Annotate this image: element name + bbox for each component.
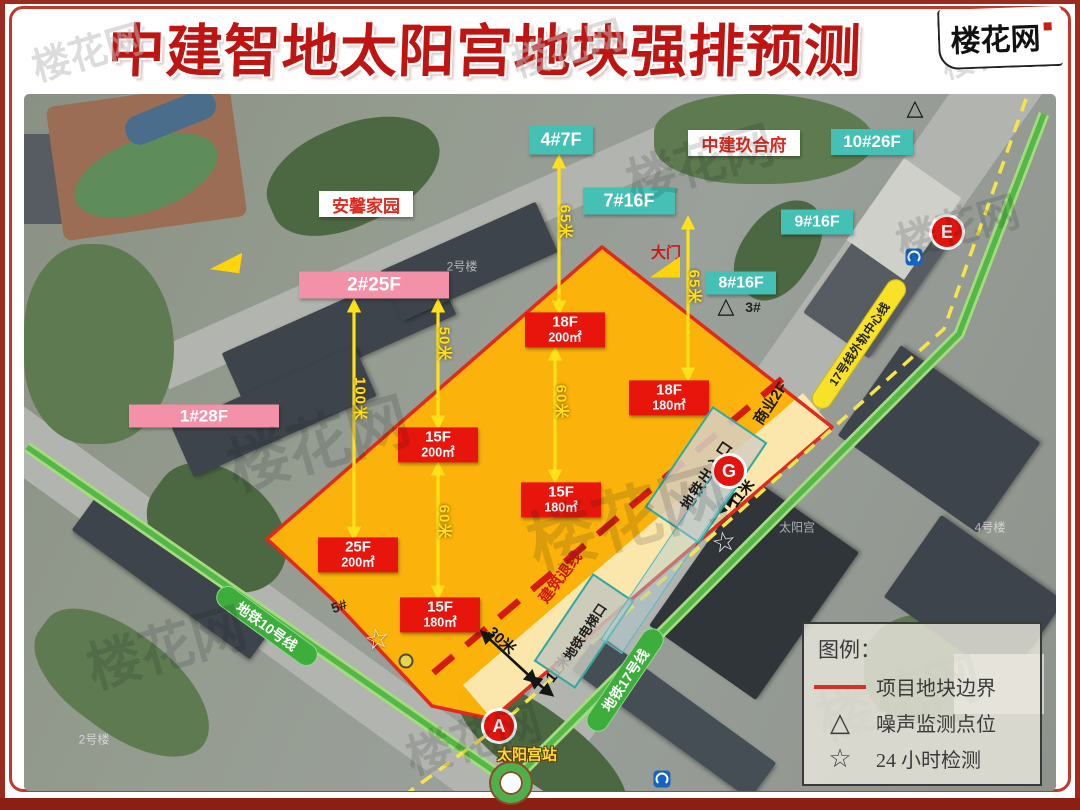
metro-line-pill: 17号线外轨中心线 — [808, 275, 910, 413]
unit-floors: 15F — [521, 484, 601, 501]
page-title: 中建智地太阳宫地块强排预测 — [39, 8, 932, 86]
zone-label: 4#7F — [529, 126, 593, 155]
yellow-dot-icon — [399, 654, 414, 669]
unit-label: 15F180㎡ — [400, 597, 480, 632]
station-name: 太阳宫站 — [497, 744, 557, 765]
satellite-map: 安馨家园中建玖合府4#7F7#16F10#26F9#16F8#16F2#25F1… — [24, 94, 1056, 791]
metro-logo-icon — [654, 771, 671, 788]
map-place-label: 2号楼 — [79, 731, 110, 748]
frame-edge-left — [0, 0, 5, 810]
unit-floors: 18F — [629, 382, 709, 399]
zone-label: 2#25F — [299, 272, 449, 299]
logo: 楼花网 — [937, 6, 1063, 70]
unit-label: 15F180㎡ — [521, 482, 601, 517]
legend-title: 图例： — [818, 634, 1030, 664]
unit-area: 180㎡ — [400, 616, 480, 630]
zone-label: 9#16F — [781, 210, 853, 235]
frame-bottom-bar — [0, 798, 1080, 810]
distance-label: 65米 — [556, 205, 577, 240]
marker-g: G — [714, 456, 744, 486]
measure-label: 30米 — [483, 622, 520, 659]
metro-line-pill: 地铁10号线 — [212, 581, 323, 670]
map-text: 商业2F — [748, 377, 792, 428]
map-place-label: 4号楼 — [975, 519, 1006, 536]
unit-label: 25F200㎡ — [318, 537, 398, 572]
zone-label: 8#16F — [706, 272, 776, 295]
legend-label: 24 小时检测 — [876, 744, 981, 773]
unit-area: 200㎡ — [525, 331, 605, 345]
legend-item-boundary: 项目地块边界 — [814, 672, 1030, 701]
frame-edge-top — [0, 0, 1080, 4]
legend-label: 噪声监测点位 — [876, 708, 996, 737]
unit-area: 180㎡ — [521, 501, 601, 515]
noise-triangle-icon: △ — [907, 95, 924, 121]
map-place-label: 太阳宫 — [779, 519, 815, 536]
watermark: 楼花网 — [215, 370, 419, 508]
legend-item-noise: △ 噪声监测点位 — [814, 708, 1030, 737]
unit-label: 18F180㎡ — [629, 380, 709, 415]
zone-label: 中建玖合府 — [688, 130, 800, 156]
logo-text: 楼花网 — [950, 14, 1041, 61]
boundary-line-swatch — [814, 685, 866, 689]
zone-label: 10#26F — [831, 129, 913, 155]
zone-label: 7#16F — [583, 188, 675, 215]
unit-area: 200㎡ — [398, 446, 478, 460]
star-icon: ☆ — [362, 621, 392, 658]
unit-floors: 15F — [398, 429, 478, 446]
frame-edge-right — [1075, 0, 1080, 810]
unit-label: 18F200㎡ — [525, 312, 605, 347]
distance-label: 60米 — [552, 385, 573, 420]
star-icon: ☆ — [814, 746, 866, 772]
map-place-label: 2号楼 — [447, 258, 478, 275]
station-symbol — [491, 763, 531, 803]
unit-floors: 18F — [525, 314, 605, 331]
noise-triangle-icon: △ — [718, 293, 735, 319]
unit-area: 180㎡ — [629, 399, 709, 413]
map-text: 3# — [745, 299, 761, 315]
gate-triangle-icon — [210, 249, 243, 274]
unit-floors: 15F — [400, 599, 480, 616]
unit-area: 200㎡ — [318, 556, 398, 570]
legend-label: 项目地块边界 — [876, 672, 996, 701]
zone-label: 1#28F — [129, 405, 279, 428]
legend: 图例： 项目地块边界 △ 噪声监测点位 ☆ 24 小时检测 — [802, 622, 1042, 786]
marker-a: A — [484, 711, 514, 741]
noise-triangle-icon: △ — [814, 710, 866, 736]
distance-label: 65米 — [685, 270, 706, 305]
unit-label: 15F200㎡ — [398, 427, 478, 462]
distance-label: 50米 — [435, 327, 456, 362]
marker-e: E — [932, 217, 962, 247]
distance-label: 100米 — [351, 377, 372, 421]
map-text: 5# — [329, 596, 349, 616]
metro-logo-icon — [906, 249, 923, 266]
star-icon: ☆ — [709, 524, 739, 561]
unit-floors: 25F — [318, 539, 398, 556]
logo-seal-icon — [1043, 22, 1051, 30]
zone-label: 安馨家园 — [319, 191, 413, 217]
legend-item-24h: ☆ 24 小时检测 — [814, 744, 1030, 773]
distance-label: 60米 — [435, 505, 456, 540]
